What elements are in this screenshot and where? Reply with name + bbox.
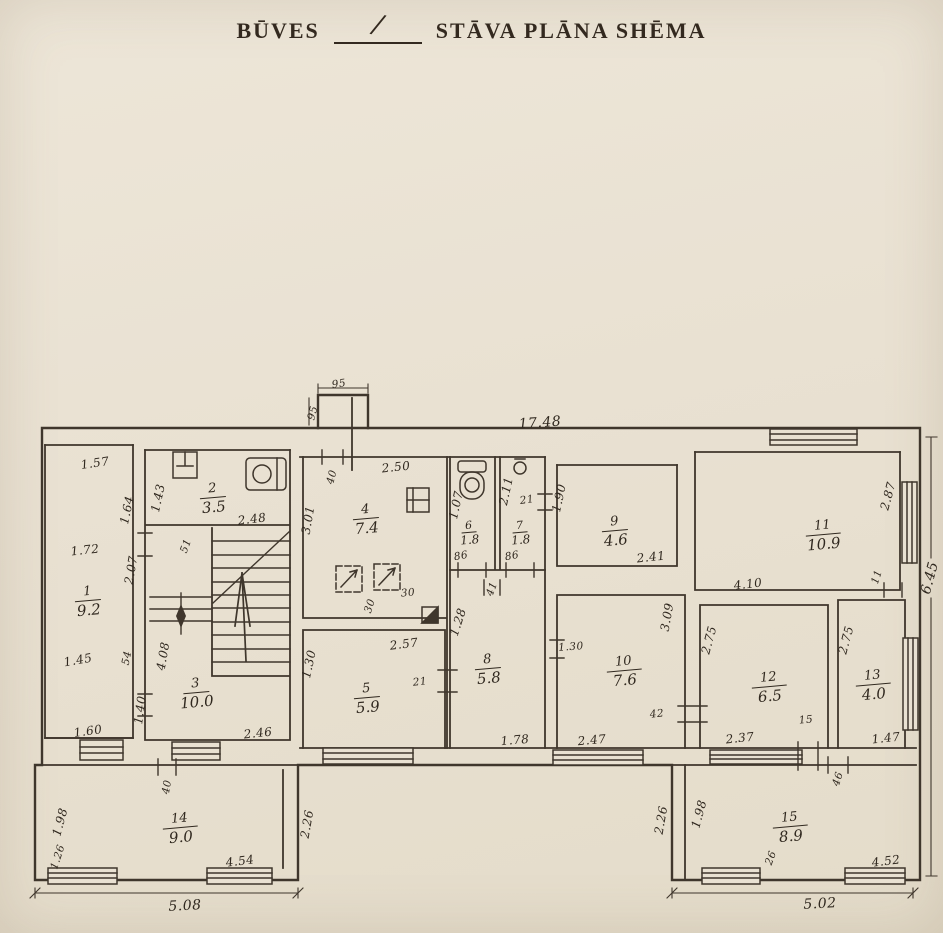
- dim-r4-flue1: 30: [400, 586, 415, 599]
- room-4-label: 47.4: [351, 498, 380, 538]
- dim-overall-top: 17.48: [518, 414, 562, 433]
- dim-r9-bottom: 2.41: [636, 549, 666, 566]
- floor-plan-drawing: [0, 0, 943, 933]
- dim-r12-bottom: 2.37: [725, 730, 755, 747]
- room-number: 14: [161, 811, 197, 830]
- room-area: 4.0: [856, 684, 892, 704]
- dim-r7-top: 21: [519, 493, 535, 507]
- room-13-label: 134.0: [854, 664, 892, 705]
- room-number: 13: [854, 668, 890, 687]
- dim-r1-mid: 1.72: [70, 542, 100, 559]
- dim-r8-bottom: 1.78: [500, 732, 530, 748]
- scanned-floor-plan-page: BŪVES / STĀVA PLĀNA SHĒMA: [0, 0, 943, 933]
- dim-r13-bottom: 1.47: [871, 730, 901, 747]
- room-area: 4.6: [602, 530, 630, 550]
- dim-r10-top: 1.30: [558, 640, 584, 654]
- room-area: 5.9: [354, 697, 382, 717]
- room-1-label: 19.2: [73, 580, 102, 620]
- down-arrow-icon: [176, 604, 186, 628]
- boiler-icon: [246, 458, 286, 490]
- room-area: 7.6: [607, 670, 643, 690]
- room-number: 15: [771, 810, 807, 829]
- room-area: 5.8: [475, 668, 503, 688]
- flue-icon: [422, 607, 438, 623]
- room-7-label: 71.8: [509, 514, 531, 548]
- room-3-label: 310.0: [178, 672, 215, 713]
- room-area: 8.9: [773, 826, 809, 846]
- room-8-label: 85.8: [473, 648, 502, 688]
- dim-r12-door: 15: [798, 713, 813, 726]
- room-10-label: 107.6: [605, 650, 643, 691]
- room-area: 1.8: [511, 532, 531, 548]
- room-area: 9.2: [75, 600, 103, 620]
- room-9-label: 94.6: [600, 510, 629, 550]
- dim-r14-door: 40: [160, 779, 174, 795]
- dim-r3-bottom: 2.46: [243, 725, 273, 742]
- room-11-label: 1110.9: [804, 514, 842, 555]
- dim-r10-bottom: 2.47: [577, 732, 607, 748]
- room-area: 9.0: [163, 827, 199, 847]
- room-area: 1.8: [460, 532, 480, 548]
- room-area: 6.5: [752, 686, 788, 706]
- dim-r14-overall: 5.08: [168, 897, 202, 915]
- room-12-label: 126.5: [750, 666, 788, 707]
- room-area: 10.0: [179, 692, 214, 712]
- vent-shaft-icon: [336, 564, 400, 592]
- room-area: 7.4: [353, 518, 381, 538]
- room-2-label: 23.5: [198, 477, 227, 517]
- dim-r10-door: 42: [649, 707, 665, 720]
- dim-r6-door: 86: [453, 549, 469, 563]
- room-6-label: 61.8: [458, 514, 480, 548]
- dim-r15-overall: 5.02: [803, 895, 837, 913]
- room-14-label: 149.0: [161, 807, 199, 848]
- room-area: 10.9: [806, 534, 842, 554]
- room-area: 3.5: [200, 497, 228, 517]
- room-number: 10: [605, 654, 641, 673]
- dim-chimney-top: 95: [331, 377, 347, 391]
- dim-r7-door: 86: [504, 549, 520, 563]
- sink-icon: [173, 452, 197, 478]
- washbasin-icon: [514, 459, 526, 474]
- stove-icon: [407, 488, 429, 512]
- room-5-label: 55.9: [352, 677, 381, 717]
- dim-r5-door: 21: [412, 675, 428, 688]
- room-15-label: 158.9: [771, 806, 809, 847]
- room-number: 12: [750, 670, 786, 689]
- dim-r4-top: 2.50: [381, 459, 411, 476]
